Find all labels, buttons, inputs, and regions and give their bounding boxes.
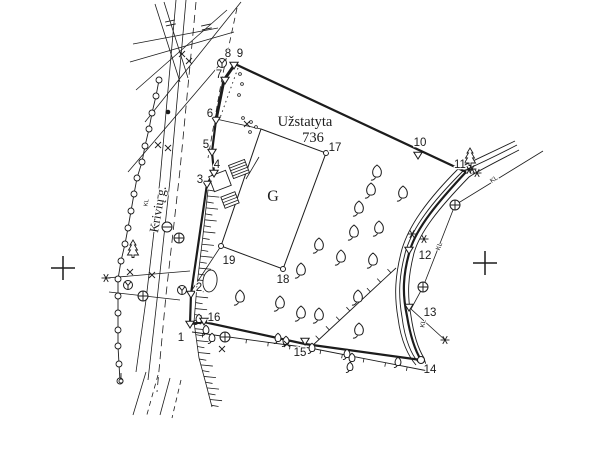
slope-hatch-tooth: [204, 376, 216, 377]
deciduous-tree-icon: [365, 183, 375, 198]
tree-crown: [236, 290, 245, 302]
slope-hatch-tooth: [200, 256, 212, 257]
fence-post-icon: [115, 327, 121, 333]
fence-tick: [346, 307, 349, 311]
fence-post-icon: [146, 126, 152, 132]
building-annex: [229, 159, 250, 178]
slope-hatch-tooth: [204, 226, 211, 227]
slope-hatch-tooth: [196, 303, 203, 304]
tree-tail: [274, 342, 277, 344]
x-mark: [179, 51, 185, 57]
slope-hatch-tooth: [207, 196, 219, 197]
boundary-point-marker: [418, 357, 425, 364]
fence-post-icon: [139, 159, 145, 165]
boundary-point-label: 12: [419, 250, 432, 262]
tree-crown: [350, 225, 359, 237]
boundary-point-label: 15: [294, 347, 307, 359]
tree-tail: [346, 371, 349, 373]
survey-plan-canvas: 12345678910111213141516171819Užstatyta73…: [0, 0, 600, 450]
tree-crown: [373, 165, 382, 177]
deciduous-tree-icon: [371, 165, 381, 180]
boundary-point-label: 8: [225, 48, 231, 60]
fence-tick: [316, 336, 319, 340]
x-mark-icon: [127, 269, 133, 275]
deciduous-tree-icon: [335, 250, 345, 265]
fence-tick: [326, 326, 329, 330]
tree-crown: [276, 296, 285, 308]
slope-hatch-tooth: [205, 214, 212, 215]
x-mark: [127, 269, 133, 275]
conifer-shape: [465, 148, 476, 166]
fence-tick: [268, 342, 269, 346]
tree-crown: [297, 306, 306, 318]
fence-tick: [320, 350, 321, 354]
cable-label-2: KL: [435, 241, 444, 251]
boundary-point-label: 6: [207, 108, 213, 120]
cable-label-1: KL: [489, 174, 500, 184]
tree-crown: [209, 333, 215, 341]
slope-hatch-tooth: [210, 400, 222, 401]
tree-tail: [365, 196, 370, 199]
boundary-point-10: 10: [414, 137, 427, 159]
building-annex: [221, 192, 239, 209]
fence-tick: [367, 288, 370, 292]
slope-hatch-tooth: [202, 371, 209, 372]
deciduous-tree-icon: [353, 201, 363, 216]
slope-hatch-tooth: [209, 394, 216, 395]
fence-tick: [406, 367, 407, 371]
tree-crown: [315, 238, 324, 250]
tree-crown: [275, 333, 281, 341]
plot-connector-line: [216, 119, 261, 129]
tree-crown: [375, 221, 384, 233]
boundary-point-18: 18: [277, 267, 290, 287]
fence-tick: [342, 354, 343, 358]
grid-cross: [473, 251, 497, 275]
utility-pole-icon: [178, 286, 187, 295]
tree-tail: [367, 266, 372, 269]
boundary-point-marker: [219, 244, 224, 249]
slope-hatch-tooth: [203, 238, 210, 239]
conifer-shape: [128, 240, 139, 258]
survey-star-icon: [102, 274, 111, 282]
manhole-icon: [220, 332, 230, 342]
slope-top-line: [194, 190, 212, 407]
conifer-tree-icon: [465, 148, 476, 166]
tree-tail: [353, 214, 358, 217]
deciduous-tree-icon: [352, 290, 362, 305]
deciduous-tree-icon: [348, 225, 358, 240]
fence-post-icon: [131, 191, 137, 197]
boundary-point-label: 3: [197, 174, 203, 186]
fence-post-icon: [153, 93, 159, 99]
boundary-point-label: 7: [216, 69, 222, 81]
fence-post-icon: [118, 258, 124, 264]
boundary-point-marker: [414, 152, 422, 159]
fence-tick: [246, 339, 247, 343]
grid-cross: [51, 256, 75, 280]
deciduous-tree-icon: [397, 186, 407, 201]
x-mark: [219, 346, 225, 352]
slope-hatch-tooth: [201, 250, 208, 251]
deciduous-tree-icon: [234, 290, 244, 305]
x-mark: [155, 142, 161, 148]
fence-post-icon: [156, 77, 162, 83]
builtup-label: Užstatyta: [278, 114, 333, 130]
construction-line: [164, 2, 188, 78]
boundary-point-label: 17: [329, 142, 342, 154]
fence-post-icon: [128, 208, 134, 214]
boundary-point-label: 14: [424, 364, 437, 376]
fence-tick: [290, 345, 291, 349]
boundary-point-label: 4: [214, 159, 221, 171]
tree-crown: [349, 353, 355, 361]
deciduous-tree-icon: [373, 221, 383, 236]
x-mark-icon: [155, 142, 161, 148]
fence-line-path: [312, 268, 396, 346]
tree-crown: [355, 323, 364, 335]
tree-tail: [295, 276, 300, 279]
fence-tick: [377, 279, 380, 283]
x-mark-icon: [219, 346, 225, 352]
slope-hatch-tooth: [199, 359, 206, 360]
parcel-boundary: [235, 64, 466, 172]
deciduous-tree-icon: [313, 308, 323, 323]
boundary-point-1: 1: [178, 321, 194, 344]
deciduous-tree-icon: [313, 238, 323, 253]
fence-post-icon: [149, 110, 155, 116]
boundary-point-2: 2: [187, 282, 202, 298]
deciduous-tree-icon: [208, 333, 215, 343]
boundary-point-14: 14: [418, 357, 437, 377]
fence-tick: [336, 317, 339, 321]
slope-hatch-tooth: [197, 347, 204, 348]
tree-tail: [234, 303, 239, 306]
x-mark: [149, 272, 155, 278]
cadastral-map: 12345678910111213141516171819Užstatyta73…: [0, 0, 600, 450]
boundary-point-marker: [203, 181, 211, 188]
manhole-icon: [450, 200, 460, 210]
utility-pole-icon: [124, 281, 133, 290]
cable-label-3: KL: [419, 319, 427, 328]
tree-crown: [337, 250, 346, 262]
slope-hatch-tooth: [200, 262, 207, 263]
deciduous-tree-icon: [274, 296, 284, 311]
slope-hatch-tooth: [196, 335, 203, 336]
boundary-point-8: 8: [225, 48, 231, 60]
street-axis-dashed-line: [172, 380, 181, 418]
bush-oval-icon: [202, 269, 219, 293]
fence-post-icon: [115, 343, 121, 349]
manhole-icon: [418, 282, 428, 292]
survey-dot-icon: [238, 94, 241, 97]
boundary-point-17: 17: [324, 142, 342, 156]
boundary-point-label: 1: [178, 332, 184, 344]
tree-tail: [373, 234, 378, 237]
tree-tail: [313, 251, 318, 254]
manhole-icon: [138, 291, 148, 301]
tree-crown: [347, 362, 353, 370]
slope-hatching: [194, 190, 222, 407]
fence-post-icon: [142, 143, 148, 149]
x-mark-icon: [165, 145, 171, 151]
deciduous-tree-icon: [295, 263, 305, 278]
tree-crown: [354, 290, 363, 302]
fence-post-icon: [122, 241, 128, 247]
x-mark: [165, 145, 171, 151]
tree-crown: [369, 253, 378, 265]
x-mark: [186, 58, 192, 64]
boundary-point-label: 16: [208, 312, 221, 324]
tree-tail: [348, 238, 353, 241]
tree-tail: [397, 199, 402, 202]
tree-tail: [274, 309, 279, 312]
slope-hatch-tooth: [195, 309, 207, 310]
boundary-point-label: 5: [203, 139, 209, 151]
tree-crown: [309, 343, 315, 351]
fence-post-icon: [116, 361, 122, 367]
building-label: G: [267, 188, 279, 205]
grid-cross-icon: [473, 251, 497, 275]
tree-crown: [399, 186, 408, 198]
boundary-point-12: 12: [405, 247, 432, 262]
tree-tail: [308, 352, 311, 354]
survey-dot-icon: [250, 121, 253, 124]
tree-crown: [315, 308, 324, 320]
slope-hatch-tooth: [198, 352, 210, 353]
slope-hatch-tooth: [207, 388, 219, 389]
boundary-point-13: 13: [405, 304, 437, 319]
tree-crown: [297, 263, 306, 275]
boundary-point-19: 19: [219, 244, 236, 268]
boundary-point-3: 3: [197, 174, 211, 188]
tree-tail: [371, 178, 376, 181]
tree-tail: [343, 358, 346, 360]
street-edge-line: [133, 372, 146, 415]
deciduous-tree-icon: [346, 362, 353, 372]
fence-post-icon: [115, 293, 121, 299]
deciduous-tree-icon: [394, 357, 401, 367]
fence-tick: [363, 359, 364, 363]
boundary-point-marker: [187, 291, 195, 298]
fence-line: [312, 268, 396, 346]
survey-dot-icon: [249, 131, 252, 134]
tree-crown: [355, 201, 364, 213]
boundary-point-label: 19: [223, 255, 236, 267]
fence-post-icon: [134, 175, 140, 181]
street-edge-line: [160, 378, 170, 415]
tree-crown: [395, 357, 401, 365]
deciduous-tree-icon: [353, 323, 363, 338]
slope-hatch-tooth: [201, 365, 213, 366]
fence-post-icon: [115, 276, 121, 282]
street-axis-dashed-line: [146, 375, 158, 418]
x-mark-icon: [179, 51, 185, 57]
deciduous-tree-icon: [274, 333, 281, 343]
fence-tick: [385, 363, 386, 367]
conifer-tree-icon: [128, 240, 139, 258]
tree-crown: [203, 325, 209, 333]
fence-tick: [387, 269, 390, 273]
sapling-head: [119, 379, 123, 383]
slope-hatch-tooth: [205, 220, 217, 221]
slope-hatch-tooth: [207, 202, 214, 203]
tree-tail: [353, 336, 358, 339]
survey-dot-icon: [239, 73, 242, 76]
construction-line: [133, 28, 218, 44]
slope-hatch-tooth: [196, 297, 208, 298]
slope-hatch-tooth: [206, 208, 218, 209]
tree-tail: [394, 366, 397, 368]
slope-hatch-tooth: [203, 232, 215, 233]
annex-outline: [229, 159, 250, 178]
builtup-area-value: 736: [302, 130, 324, 146]
grid-cross-icon: [51, 256, 75, 280]
x-mark-icon: [186, 58, 192, 64]
x-mark-icon: [149, 272, 155, 278]
valve-icon: [162, 222, 172, 232]
tree-crown: [367, 183, 376, 195]
slope-hatch-tooth: [212, 405, 219, 406]
boundary-point-marker: [281, 267, 286, 272]
survey-dot-icon: [242, 117, 245, 120]
deciduous-tree-icon: [295, 306, 305, 321]
boundary-point-label: 13: [424, 307, 437, 319]
tree-tail: [335, 263, 340, 266]
boundary-point-label: 2: [196, 282, 202, 294]
boundary-point-label: 9: [237, 48, 243, 60]
slope-hatch-tooth: [206, 382, 213, 383]
deciduous-tree-icon: [367, 253, 377, 268]
tree-tail: [295, 319, 300, 322]
survey-dot-icon: [241, 83, 244, 86]
fence-post-icon: [115, 310, 121, 316]
junction-dot-icon: [166, 110, 171, 115]
fence-post-icon: [125, 225, 131, 231]
manhole-icon: [174, 233, 184, 243]
boundary-point-label: 18: [277, 274, 290, 286]
boundary-point-label: 10: [414, 137, 427, 149]
boundary-point-16: 16: [200, 312, 221, 325]
tree-tail: [313, 321, 318, 324]
slope-hatch-tooth: [197, 341, 209, 342]
boundary-point-label: 11: [454, 159, 466, 171]
survey-dot-icon: [255, 126, 258, 129]
slope-hatch-tooth: [202, 244, 214, 245]
slope-hatch-tooth: [199, 268, 211, 269]
